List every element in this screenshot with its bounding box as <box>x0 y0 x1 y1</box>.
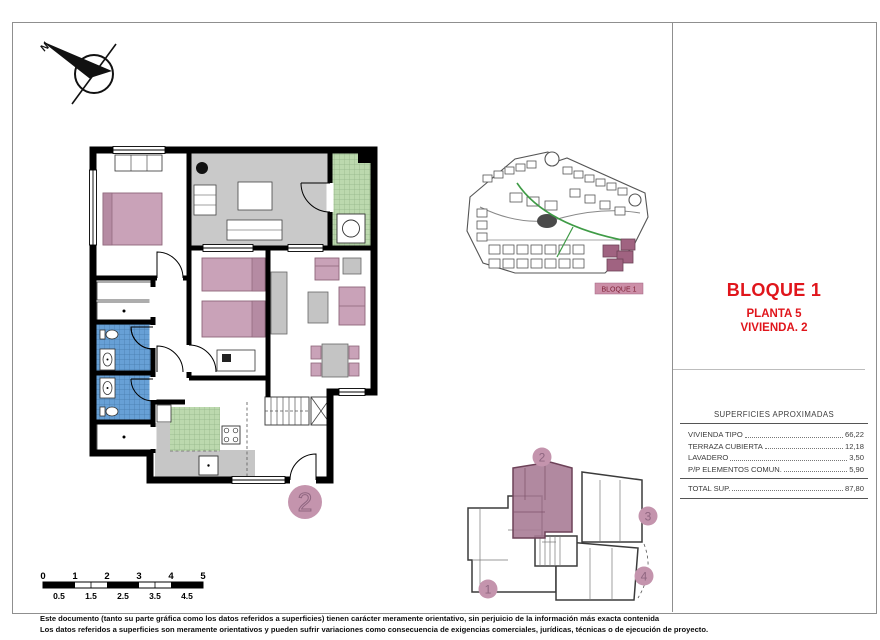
surfaces-table-title: SUPERFICIES APROXIMADAS <box>680 410 868 424</box>
svg-text:4: 4 <box>641 570 648 584</box>
block-title: BLOQUE 1 <box>673 280 875 301</box>
site-plan: BLOQUE 1 <box>455 145 655 310</box>
title-block: BLOQUE 1 PLANTA 5 VIVIENDA. 2 <box>673 280 875 334</box>
dining-chair <box>349 363 359 376</box>
svg-text:3: 3 <box>136 571 141 582</box>
unit-number-badge: 2 <box>288 485 322 519</box>
svg-text:4.5: 4.5 <box>181 591 193 601</box>
svg-text:1: 1 <box>72 571 78 582</box>
dining-table <box>322 344 348 377</box>
svg-text:3: 3 <box>645 510 652 524</box>
key-apartment-2-highlighted <box>513 462 572 538</box>
key-plan: 2 1 3 4 <box>450 440 665 610</box>
svg-text:1.5: 1.5 <box>85 591 97 601</box>
svg-text:3.5: 3.5 <box>149 591 161 601</box>
tv-table <box>343 258 361 274</box>
north-label: N <box>39 41 52 54</box>
floorplan-sheet: { "title_block": { "block": "BLOQUE 1", … <box>0 0 880 640</box>
floor-title: PLANTA 5 <box>673 308 875 320</box>
disclaimer-line-1: Este documento (tanto su parte gráfica c… <box>40 614 870 625</box>
terrace-lamp <box>196 162 208 174</box>
svg-text:5: 5 <box>200 571 206 582</box>
terrace-lounger <box>194 185 216 215</box>
surfaces-table: SUPERFICIES APROXIMADAS VIVIENDA TIPO66,… <box>680 410 868 499</box>
fridge <box>157 405 171 422</box>
key-apartment-3 <box>582 472 642 542</box>
table-row: LAVADERO3,50 <box>688 453 864 462</box>
table-bottom-border <box>680 498 868 499</box>
svg-text:4: 4 <box>168 571 174 582</box>
svg-text:BLOQUE 1: BLOQUE 1 <box>601 287 636 294</box>
sideboard <box>271 272 287 334</box>
table-total-row: TOTAL SUP.87,80 <box>688 484 864 493</box>
closet <box>97 282 152 300</box>
unit-title: VIVIENDA. 2 <box>673 322 875 334</box>
svg-text:2: 2 <box>104 571 109 582</box>
compass-icon: N <box>26 30 136 110</box>
site-block-label: BLOQUE 1 <box>595 283 643 294</box>
terrace-table <box>238 182 272 210</box>
disclaimer-line-2: Los datos referidos a superficies son me… <box>40 625 870 636</box>
unit-number: 2 <box>298 487 312 517</box>
scale-top-labels: 0 1 2 3 4 5 <box>40 571 206 582</box>
coffee-table <box>308 292 328 323</box>
dining-chair <box>311 346 321 359</box>
toilet <box>100 330 105 339</box>
table-row: TERRAZA CUBIERTA12,18 <box>688 442 864 451</box>
wardrobe <box>115 155 162 171</box>
armchair <box>315 258 339 280</box>
dining-chair <box>349 346 359 359</box>
stair-core <box>265 397 331 425</box>
table-row: P/P ELEMENTOS COMUN.5,90 <box>688 465 864 474</box>
toilet <box>100 407 105 416</box>
floor-plan: 2 <box>75 135 455 525</box>
svg-text:0.5: 0.5 <box>53 591 65 601</box>
title-separator <box>673 369 865 370</box>
svg-text:2.5: 2.5 <box>117 591 129 601</box>
scale-bottom-labels: 0.5 1.5 2.5 3.5 4.5 <box>53 591 193 601</box>
disclaimer: Este documento (tanto su parte gráfica c… <box>40 614 870 635</box>
dining-chair <box>311 363 321 376</box>
table-row: VIVIENDA TIPO66,22 <box>688 430 864 439</box>
kitchen-floor <box>170 407 220 451</box>
scale-bar: 0 1 2 3 4 5 0.5 1.5 2.5 3.5 4.5 <box>36 568 216 604</box>
svg-text:0: 0 <box>40 571 45 582</box>
svg-text:2: 2 <box>539 451 546 465</box>
svg-text:1: 1 <box>485 583 492 597</box>
key-core <box>535 536 577 566</box>
